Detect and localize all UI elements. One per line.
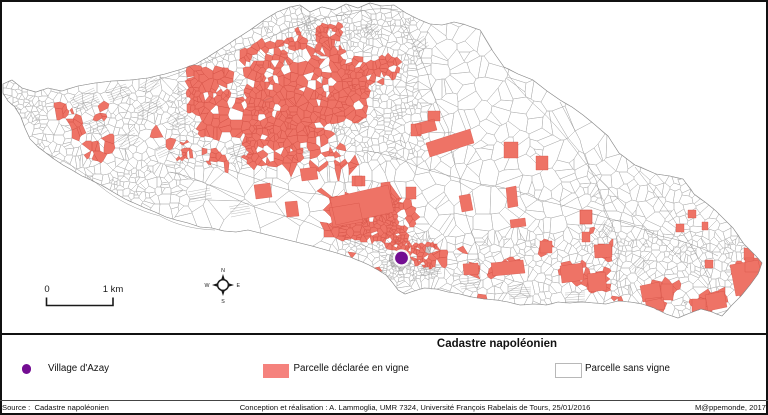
svg-text:E: E bbox=[237, 283, 241, 289]
svg-text:1 km: 1 km bbox=[103, 284, 124, 295]
svg-text:N: N bbox=[221, 268, 225, 274]
svg-text:W: W bbox=[205, 283, 210, 289]
svg-text:0: 0 bbox=[44, 284, 49, 295]
svg-text:S: S bbox=[221, 299, 225, 305]
